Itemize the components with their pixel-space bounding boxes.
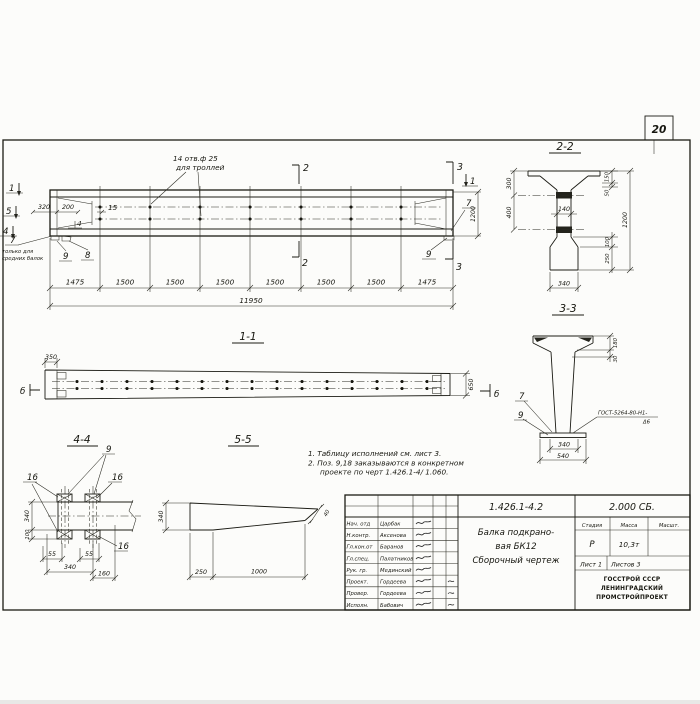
dim-300: 300 [506, 177, 513, 189]
sig-name: Царбак [380, 522, 401, 528]
sig-name: Гордеева [380, 591, 406, 597]
holes-callout-line2: для троллей [175, 163, 225, 172]
dim-180: 180 [613, 337, 619, 348]
dim-340-bottom: 340 [64, 564, 76, 571]
pos-label-7-left: 7 [10, 236, 16, 246]
note-line-1: 1. Таблицу исполнений см. лист 3. [308, 449, 441, 458]
dim-200: 200 [62, 204, 74, 211]
section-5-5-view: 5-5 340 40 250 1000 [158, 434, 332, 580]
dim-1000: 1000 [251, 569, 267, 576]
dim-340-bottom: 340 [558, 281, 570, 288]
dim-55-a: 55 [48, 551, 56, 558]
dim-total-length: 11950 [239, 296, 263, 305]
drawing-title-line1: Балка подкрано- [478, 528, 555, 538]
pos-label-9: 9 [518, 411, 523, 421]
organization-line2: ЛЕНИНГРАДСКИЙ [601, 584, 663, 592]
pos-label-9: 9 [106, 445, 111, 455]
pos-label-16-left: 16 [27, 473, 38, 483]
elevation-view: 14 отв.ф 25 для троллей 1 5 4 2 2 3 3 1 … [0, 154, 481, 310]
dim-segment: 1500 [367, 278, 386, 287]
holes-callout-line1: 14 отв.ф 25 [173, 154, 218, 163]
dim-100: 100 [605, 236, 611, 247]
dim-540: 540 [557, 453, 569, 460]
section-1-1-view: 1-1 350 650 б б [20, 331, 500, 400]
cut-marker-b-right: б [494, 390, 500, 400]
title-block: 1.426.1-4.2 2.000 СБ. Балка подкрано- ва… [345, 495, 690, 610]
pos-label-16-bottom: 16 [118, 542, 129, 552]
dim-1200-section: 1200 [622, 212, 629, 228]
dim-segment: 1500 [116, 278, 135, 287]
pos-label-16-right: 16 [112, 473, 123, 483]
cut-marker-3-bottom: 3 [456, 262, 462, 273]
mass-value: 10,3т [619, 540, 640, 549]
pos-label-15: 15 [108, 203, 118, 212]
sig-role: Рук. гр. [347, 568, 368, 574]
dim-400: 400 [506, 206, 513, 218]
dim-segment: 1500 [266, 278, 285, 287]
sig-role: Проект. [347, 580, 369, 586]
dim-340: 340 [158, 510, 165, 522]
pos-label-7: 7 [519, 392, 525, 402]
sheets-total: Листов 3 [610, 562, 641, 569]
cut-marker-1-right: 1 [470, 177, 475, 187]
pos-7-note-line1: только для [2, 249, 34, 255]
dim-30: 30 [613, 355, 619, 362]
dim-140: 140 [558, 206, 570, 213]
cut-marker-1-left: 1 [9, 184, 14, 194]
dim-340-left: 340 [24, 510, 31, 522]
column-header-mass: Масса [621, 523, 638, 529]
section-title-4-4: 4-4 [73, 434, 90, 446]
section-title-1-1: 1-1 [239, 331, 256, 343]
cut-marker-2-bottom: 2 [302, 258, 308, 269]
dim-350: 350 [45, 354, 57, 361]
cut-marker-3-top: 3 [457, 162, 463, 173]
pos-label-9-right: 9 [426, 250, 431, 260]
dim-150: 150 [605, 171, 611, 182]
sig-name: Аксенова [379, 533, 406, 539]
sig-role: Исполн. [347, 603, 369, 609]
notes: 1. Таблицу исполнений см. лист 3. 2. Поз… [308, 449, 464, 477]
document-code: 2.000 СБ. [609, 502, 655, 513]
sig-name: Гордеева [380, 580, 406, 586]
cut-marker-5-left: 5 [6, 207, 11, 217]
section-3-3-view: 3-3 180 30 7 9 ГОСТ-5264-80-Н1- Δ6 340 5… [514, 303, 658, 464]
cut-marker-4-left: 4 [3, 227, 8, 237]
sig-role: Гл.спец. [347, 556, 370, 562]
drawing-designation: 1.426.1-4.2 [489, 502, 543, 513]
pos-7-note-line2: средних балок [2, 256, 44, 262]
pos-label-8: 8 [85, 251, 91, 261]
column-header-scale: Масшт. [659, 523, 679, 529]
organization-line3: ПРОМСТРОЙПРОЕКТ [596, 593, 668, 601]
dim-650: 650 [468, 378, 475, 390]
weld-spec-line2: Δ6 [642, 420, 651, 426]
section-title-3-3: 3-3 [559, 303, 577, 315]
pos-label-9-left: 9 [63, 252, 68, 262]
stage-value: Р [589, 540, 595, 550]
cut-marker-4-inner: 4 [77, 219, 82, 228]
page-number: 20 [652, 124, 667, 136]
dim-beam-height: 1200 [470, 206, 477, 222]
organization-line1: ГОССТРОЙ СССР [604, 575, 661, 583]
plan-holes [77, 382, 427, 389]
dim-40: 40 [323, 509, 332, 518]
sig-name: Баранов [380, 545, 403, 551]
dim-100: 100 [25, 529, 31, 540]
column-header-stage: Стадия [582, 523, 603, 529]
weld-spec-line1: ГОСТ-5264-80-Н1- [598, 411, 647, 417]
section-4-4-view: 4-4 9 16 16 16 340 100 55 55 340 160 [23, 434, 141, 581]
sig-name: Палатников [380, 556, 413, 562]
sig-name: Мединский [380, 568, 412, 574]
dim-250: 250 [605, 253, 611, 264]
dim-340: 340 [558, 442, 570, 449]
dim-55-b: 55 [85, 551, 93, 558]
note-line-2: 2. Поз. 9,18 заказываются в конкретном [308, 459, 464, 468]
drawing-canvas: 20 14 отв.ф 25 для троллей 1 5 4 2 2 3 3 [0, 0, 700, 700]
dim-segment: 1500 [216, 278, 235, 287]
trolley-holes [100, 207, 401, 219]
sig-role: Н.контр. [347, 533, 371, 539]
cut-marker-2-top: 2 [303, 163, 309, 174]
sig-role: Провер. [347, 591, 369, 597]
sig-role: Нач. отд [347, 522, 371, 528]
dim-50: 50 [605, 189, 611, 196]
dim-segment: 1475 [418, 278, 437, 287]
drawing-title-line3: Сборочный чертеж [473, 556, 560, 566]
bearing-plate [540, 433, 586, 438]
section-title-5-5: 5-5 [234, 434, 252, 446]
cut-marker-b-left: б [20, 387, 26, 397]
dim-320: 320 [38, 204, 50, 211]
dim-segment: 1500 [166, 278, 185, 287]
drawing-title-line2: вая БК12 [495, 542, 536, 552]
sheet-number: Лист 1 [579, 562, 602, 569]
frame-border [3, 140, 690, 610]
sig-name: Бабович [380, 603, 403, 609]
dim-250: 250 [195, 569, 207, 576]
dim-segment: 1500 [317, 278, 336, 287]
section-2-2-view: 2-2 300 400 140 150 50 1200 100 250 340 [506, 141, 634, 292]
dim-segment: 1475 [66, 278, 85, 287]
note-line-3: проекте по черт 1.426.1-4/ 1.060. [320, 468, 449, 477]
sig-role: Гл.кон.от [347, 545, 374, 551]
drawing-sheet: 20 14 отв.ф 25 для троллей 1 5 4 2 2 3 3 [0, 0, 700, 700]
dim-160: 160 [98, 571, 110, 578]
section-title-2-2: 2-2 [556, 141, 574, 153]
